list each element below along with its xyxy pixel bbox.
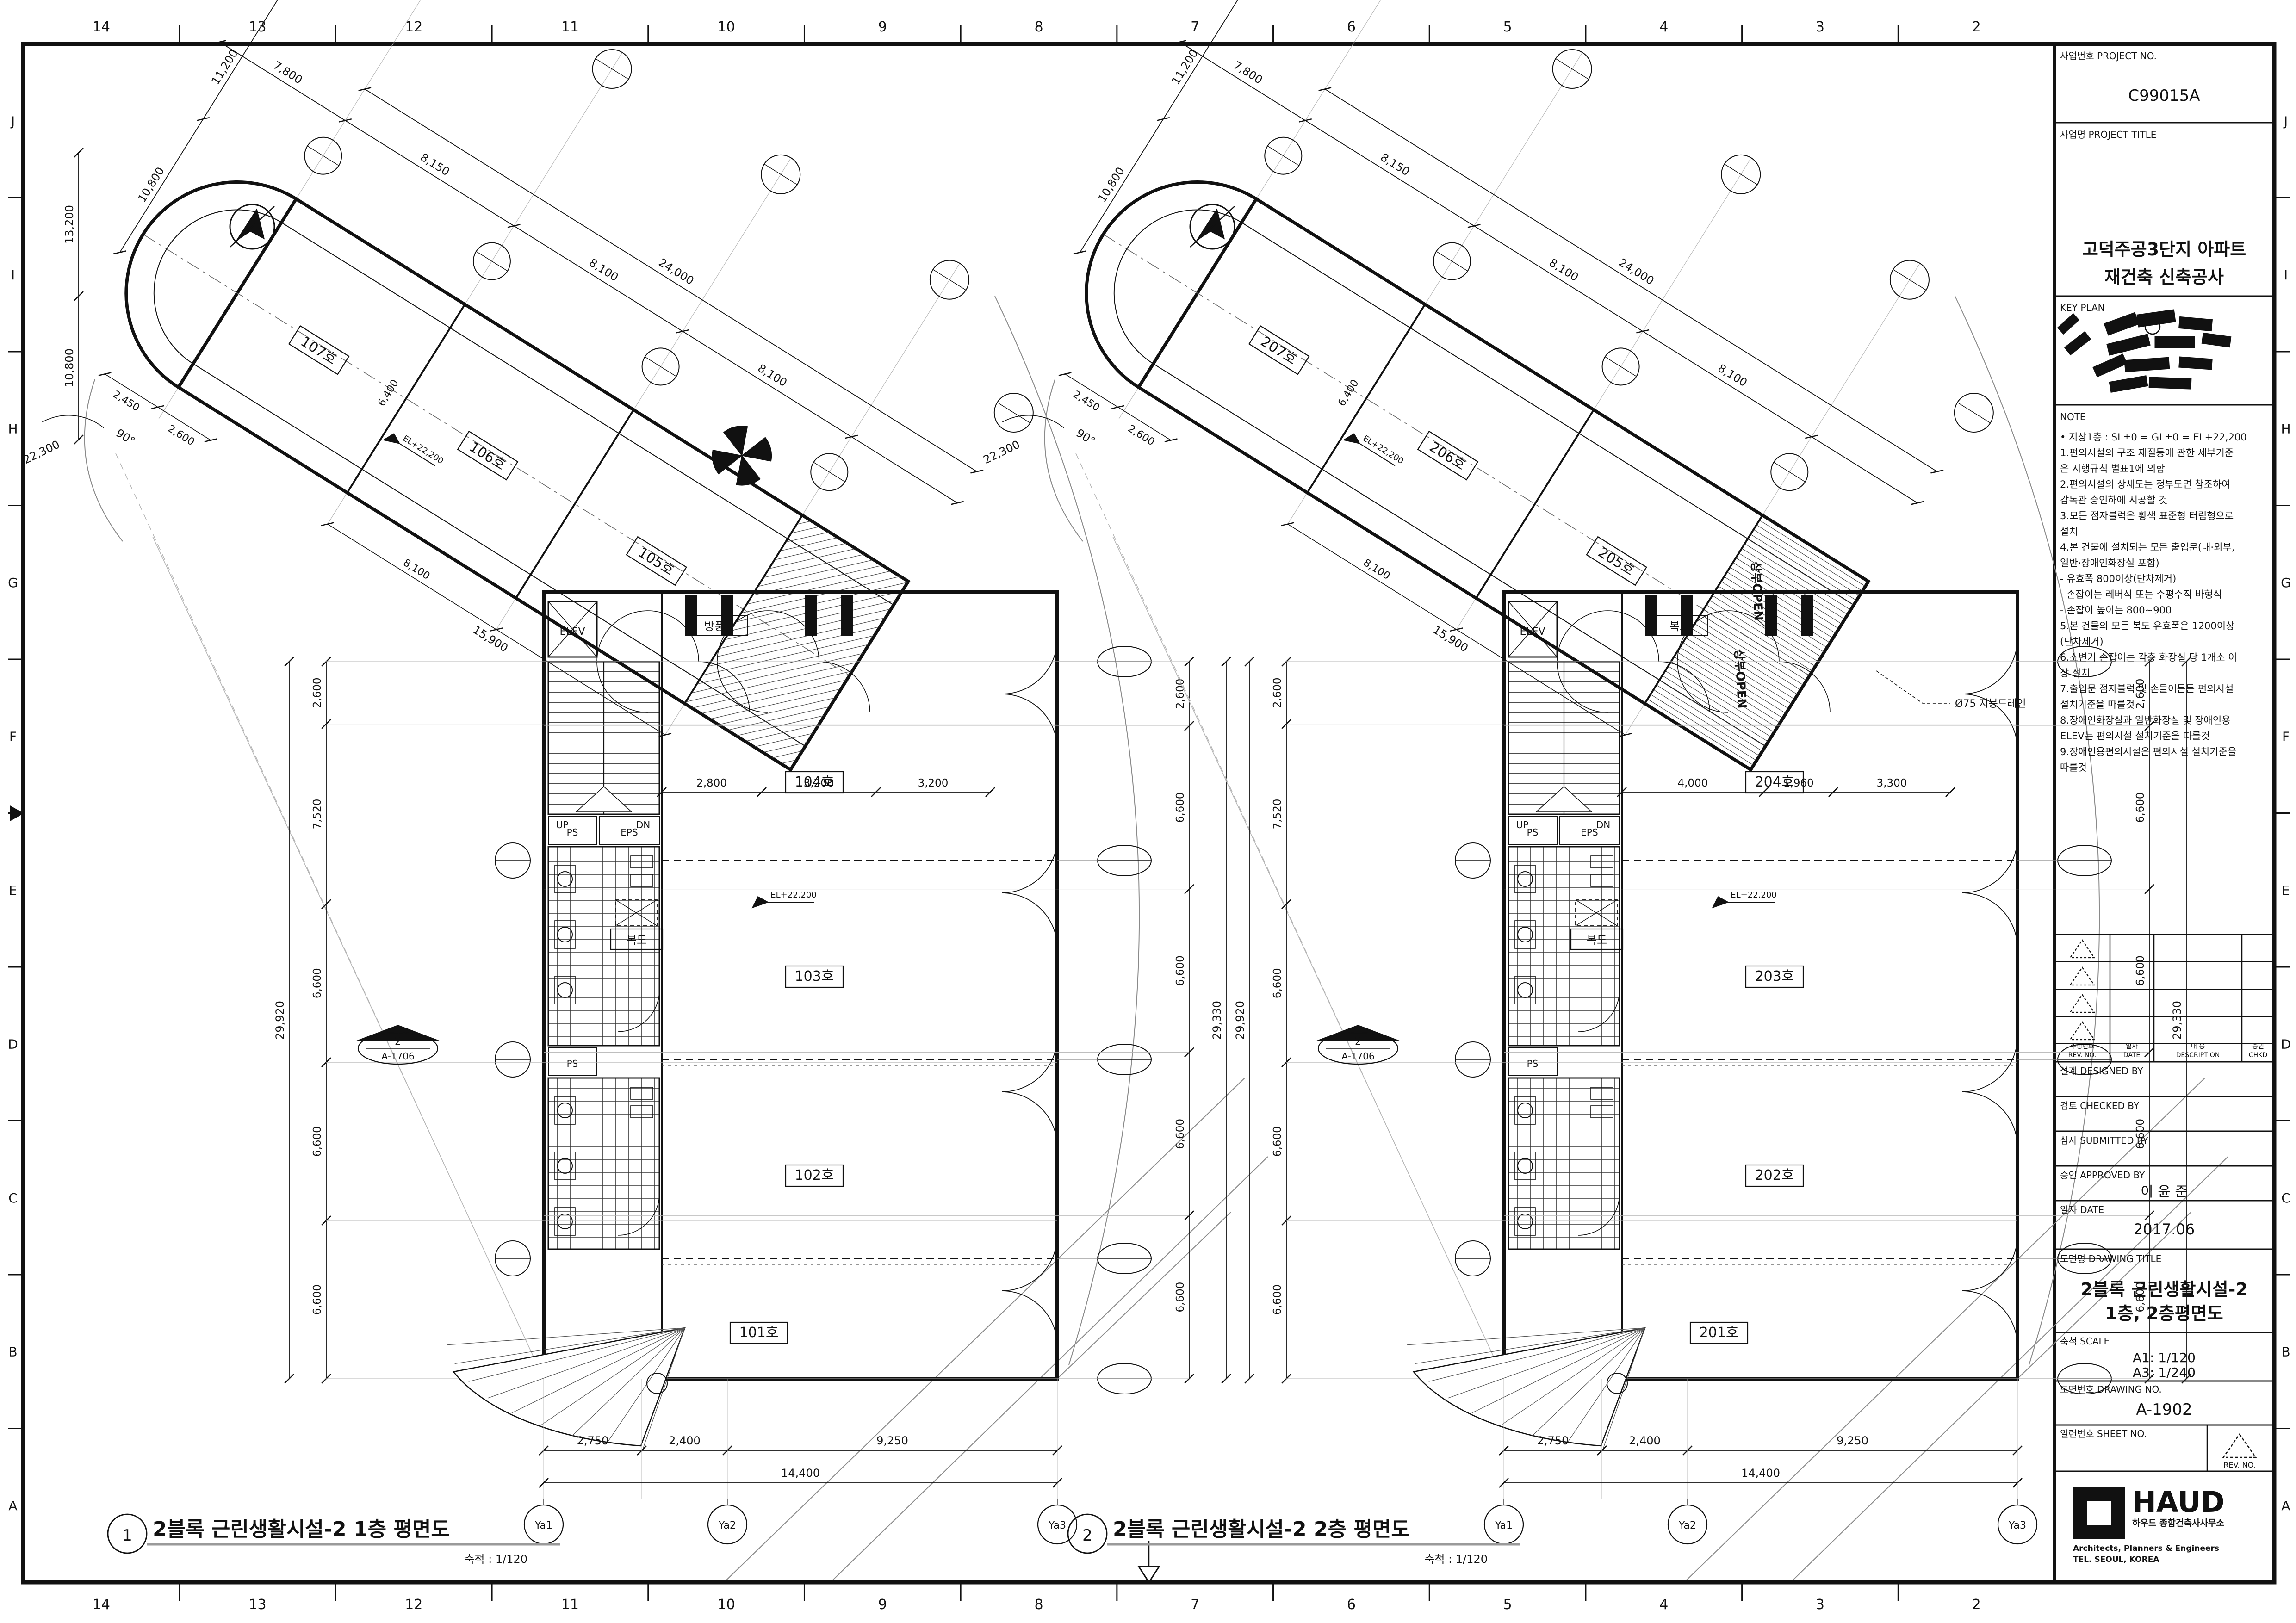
room-label: 102호 — [795, 1167, 834, 1183]
drain-label: Ø75 지붕드레인 — [1955, 698, 2026, 710]
elevator-label: ELEV — [1520, 626, 1545, 638]
border-letter-right: G — [2281, 575, 2291, 590]
dim-text: 7,520 — [311, 799, 323, 830]
dim-text: 6,600 — [311, 1284, 323, 1315]
dim-text: 29,330 — [2171, 1001, 2184, 1040]
scale-a1: A1: 1/120 — [2133, 1350, 2196, 1365]
checked-by-label: 검토 CHECKED BY — [2060, 1100, 2140, 1111]
dim-text: 9,250 — [876, 1434, 908, 1447]
room-label: 201호 — [1700, 1325, 1739, 1341]
border-letter-left: I — [11, 267, 15, 283]
section-ref: A-1706 — [381, 1051, 414, 1062]
border-letter-left: F — [9, 729, 17, 744]
drawing-no-label: 도면번호 DRAWING NO. — [2060, 1384, 2162, 1395]
logo-mark-inner — [2087, 1501, 2111, 1525]
border-number-bottom: 5 — [1503, 1597, 1512, 1613]
drawing-title-line1: 2블록 근린생활시설-2 — [2080, 1279, 2248, 1300]
border-number-top: 3 — [1816, 19, 1824, 35]
logo-name: HAUD — [2132, 1485, 2225, 1519]
border-letter-right: E — [2282, 883, 2290, 898]
rev-col4-eng: CHKD — [2249, 1052, 2267, 1059]
sheet-no-label: 일련번호 SHEET NO. — [2060, 1428, 2147, 1439]
dim-text: 2,750 — [1537, 1434, 1569, 1447]
border-number-top: 7 — [1191, 19, 1199, 35]
project-title-line2: 재건축 신축공사 — [2104, 267, 2224, 287]
rev-col2-kor: 일자 — [2126, 1043, 2138, 1050]
submitted-by-label: 심사 SUBMITTED BY — [2060, 1135, 2148, 1146]
note-label: NOTE — [2060, 411, 2086, 422]
border-number-top: 8 — [1034, 19, 1043, 35]
room-label: 101호 — [739, 1325, 779, 1341]
level-text: EL+22,200 — [1731, 890, 1776, 900]
corridor-label: 복도 — [627, 934, 647, 947]
rev-col3-kor: 내 용 — [2191, 1043, 2205, 1050]
key-plan-building — [2149, 377, 2191, 389]
note-line: 설치기준을 따를것 — [2060, 699, 2135, 710]
door-leaf — [721, 595, 733, 636]
door-leaf — [685, 595, 697, 636]
elevator-label: ELEV — [559, 626, 585, 638]
ps-label: PS — [1527, 827, 1539, 838]
corridor-label: 복도 — [1587, 934, 1607, 947]
dim-text: 3,200 — [804, 777, 834, 789]
border-number-bottom: 14 — [93, 1597, 110, 1613]
note-line: 일반·장애인화장실 포함) — [2060, 558, 2159, 569]
grid-bubble-label: Ya1 — [1495, 1520, 1513, 1531]
key-plan-building — [2155, 337, 2195, 348]
border-number-bottom: 13 — [248, 1597, 266, 1613]
note-line: - 손잡이 높이는 800~900 — [2060, 605, 2172, 616]
dim-text: 6,600 — [1174, 1282, 1186, 1313]
rev-no-label: REV. NO. — [2223, 1461, 2255, 1469]
rev-col1-kor: 수정번호 — [2070, 1043, 2094, 1050]
door-leaf — [805, 595, 817, 636]
grid-bubble-label: Ya3 — [1048, 1520, 1066, 1531]
note-line: 상 설치 — [2060, 668, 2090, 679]
plan-title-text: 2블록 근린생활시설-2 1층 평면도 — [153, 1518, 450, 1541]
note-line: 5.본 건물의 모든 복도 유효폭은 1200이상 — [2060, 620, 2234, 632]
room-label: 203호 — [1755, 968, 1794, 985]
note-line: (단차제거) — [2060, 636, 2104, 647]
room-label: 202호 — [1755, 1167, 1794, 1183]
approved-by-value: 이 윤 준 — [2141, 1184, 2188, 1200]
dim-text: 6,600 — [311, 968, 323, 998]
note-line: 따를것 — [2060, 762, 2087, 773]
border-letter-left: E — [9, 883, 17, 898]
border-number-bottom: 9 — [878, 1597, 887, 1613]
dim-text: 2,400 — [669, 1434, 701, 1447]
date-label: 일자 DATE — [2060, 1204, 2104, 1215]
project-no-label: 사업번호 PROJECT NO. — [2060, 50, 2157, 62]
dim-text: 4,000 — [1677, 777, 1708, 789]
dim-text: 2,400 — [1629, 1434, 1661, 1447]
border-number-bottom: 6 — [1347, 1597, 1356, 1613]
border-number-bottom: 4 — [1659, 1597, 1668, 1613]
note-line: ELEV는 편의시설 설치기준을 따를것 — [2060, 731, 2210, 742]
note-line: 8.장애인화장실과 일반화장실 및 장애인용 — [2060, 715, 2231, 726]
section-no: 2 — [395, 1036, 401, 1047]
drawing-sheet: 141413131212111110109988776655443322JJII… — [0, 0, 2296, 1623]
border-letter-right: I — [2284, 267, 2288, 283]
rev-col4-kor: 승인 — [2252, 1043, 2264, 1050]
grid-bubble-label: Ya3 — [2008, 1520, 2026, 1531]
dim-text: 6,600 — [311, 1126, 323, 1157]
dim-text: 2,600 — [1174, 679, 1186, 709]
dim-text: 29,330 — [1210, 1001, 1223, 1040]
dim-text: 1,960 — [1783, 777, 1814, 789]
designed-by-label: 설계 DESIGNED BY — [2060, 1065, 2143, 1077]
door-leaf — [1801, 595, 1813, 636]
dim-text: 6,600 — [1272, 1284, 1284, 1315]
project-title-label: 사업명 PROJECT TITLE — [2060, 129, 2156, 140]
note-line: - 손잡이는 레버식 또는 수평수직 바형식 — [2060, 589, 2222, 600]
border-letter-right: F — [2282, 729, 2290, 744]
border-number-top: 14 — [93, 19, 110, 35]
dim-text: 6,600 — [1174, 955, 1186, 986]
border-number-bottom: 10 — [718, 1597, 735, 1613]
ps-label: PS — [1527, 1058, 1539, 1069]
note-line: - 유효폭 800이상(단차제거) — [2060, 573, 2176, 584]
border-number-top: 5 — [1503, 19, 1512, 35]
stair-dn-label: DN — [1596, 819, 1610, 830]
border-number-top: 2 — [1972, 19, 1981, 35]
plan-scale-text: 축척 : 1/120 — [1424, 1553, 1488, 1566]
border-number-top: 10 — [718, 19, 735, 35]
key-plan-building — [2179, 357, 2212, 370]
project-title-line1: 고덕주공3단지 아파트 — [2082, 239, 2246, 260]
note-line: 감독관 승인하에 시공할 것 — [2060, 495, 2168, 506]
border-letter-right: A — [2281, 1498, 2290, 1513]
note-line: 7.출입문 점자블럭 및 손들어든든 편의시설 — [2060, 683, 2234, 694]
border-letter-left: G — [8, 575, 18, 590]
plan-number: 1 — [122, 1526, 132, 1545]
dim-text: 2,600 — [311, 677, 323, 708]
border-number-top: 11 — [561, 19, 579, 35]
drawing-title-label: 도면명 DRAWING TITLE — [2060, 1253, 2161, 1264]
door-leaf — [1765, 595, 1777, 636]
dim-text: 9,250 — [1837, 1434, 1868, 1447]
border-number-top: 12 — [405, 19, 422, 35]
grid-bubble-label: Ya2 — [1678, 1520, 1696, 1531]
section-no: 2 — [1355, 1036, 1361, 1047]
project-no-value: C99015A — [2128, 87, 2200, 105]
dim-text: 6,600 — [1272, 1126, 1284, 1157]
section-ref: A-1706 — [1341, 1051, 1374, 1062]
dim-text: 3,200 — [918, 777, 949, 789]
dim-text: 13,200 — [63, 205, 76, 244]
note-line: • 지상1층 : SL±0 = GL±0 = EL+22,200 — [2060, 432, 2247, 443]
border-number-bottom: 7 — [1191, 1597, 1199, 1613]
border-number-bottom: 11 — [561, 1597, 579, 1613]
border-letter-right: H — [2281, 421, 2290, 436]
plan-scale-text: 축척 : 1/120 — [464, 1553, 527, 1566]
dim-text: 3,300 — [1877, 777, 1907, 789]
eps-label: EPS — [621, 827, 638, 838]
dim-text: 6,600 — [2135, 955, 2147, 986]
drawing-no-value: A-1902 — [2136, 1400, 2192, 1419]
ps-label: PS — [567, 827, 578, 838]
border-number-bottom: 2 — [1972, 1597, 1981, 1613]
border-number-bottom: 8 — [1034, 1597, 1043, 1613]
logo-sub2: Architects, Planners & Engineers — [2073, 1544, 2219, 1553]
drawing-title-line2: 1층, 2층평면도 — [2105, 1303, 2223, 1324]
scale-label: 축척 SCALE — [2060, 1336, 2110, 1347]
eps-label: EPS — [1581, 827, 1598, 838]
dim-text: 2,600 — [1272, 677, 1284, 708]
plan-number: 2 — [1082, 1526, 1092, 1545]
border-letter-right: B — [2281, 1344, 2290, 1359]
rev-col2-eng: DATE — [2123, 1052, 2140, 1059]
restroom-area — [548, 1078, 659, 1249]
dim-text: 2,800 — [696, 777, 727, 789]
border-letter-left: J — [10, 113, 15, 129]
door-leaf — [1645, 595, 1657, 636]
border-number-top: 9 — [878, 19, 887, 35]
note-line: 1.편의시설의 구조 재질등에 관한 세부기준 — [2060, 447, 2234, 458]
note-line: 3.모든 점자블럭은 황색 표준형 터림형으로 — [2060, 510, 2234, 521]
dim-text: 6,600 — [1174, 1119, 1186, 1149]
logo-sub1: 하우드 종합건축사사무소 — [2132, 1518, 2224, 1528]
border-letter-left: B — [8, 1344, 17, 1359]
note-line: 9.장애인용편의시설은 편의시설 설치기준을 — [2060, 746, 2236, 757]
room-label: 103호 — [795, 968, 834, 985]
restroom-area — [1508, 1078, 1620, 1249]
door-leaf — [1681, 595, 1693, 636]
key-plan-building — [2149, 377, 2191, 389]
scale-a3: A3: 1/240 — [2133, 1365, 2196, 1380]
dim-text: 14,400 — [781, 1467, 820, 1480]
date-value: 2017.06 — [2134, 1220, 2195, 1238]
door-leaf — [841, 595, 853, 636]
border-number-bottom: 12 — [405, 1597, 422, 1613]
dim-text: 6,600 — [1174, 792, 1186, 823]
note-line: 4.본 건물에 설치되는 모든 출입문(내·외부, — [2060, 542, 2234, 553]
stair-dn-label: DN — [636, 819, 650, 830]
key-plan-label: KEY PLAN — [2060, 302, 2105, 313]
plan-title-text: 2블록 근린생활시설-2 2층 평면도 — [1113, 1518, 1410, 1541]
company-logo: HAUD 하우드 종합건축사사무소 Architects, Planners &… — [2073, 1485, 2225, 1564]
grid-bubble-label: Ya1 — [534, 1520, 552, 1531]
dim-text: 10,800 — [63, 348, 76, 387]
border-number-top: 4 — [1659, 19, 1668, 35]
logo-sub3: TEL. SEOUL, KOREA — [2073, 1555, 2159, 1564]
rev-col3-eng: DESCRIPTION — [2176, 1052, 2220, 1059]
border-letter-left: A — [8, 1498, 17, 1513]
dim-text: 6,600 — [1272, 968, 1284, 998]
note-line: 6.소변기 손잡이는 각층 화장실 당 1개소 이 — [2060, 652, 2237, 663]
dim-text: 14,400 — [1741, 1467, 1780, 1480]
border-letter-left: D — [8, 1036, 18, 1052]
note-line: 2.편의시설의 상세도는 정부도면 참조하여 — [2060, 479, 2231, 490]
dim-text: 7,520 — [1272, 799, 1284, 830]
ps-label: PS — [567, 1058, 578, 1069]
border-letter-right: C — [2281, 1190, 2290, 1206]
key-plan-building — [2179, 357, 2212, 370]
border-letter-left: H — [8, 421, 18, 436]
approved-by-label: 승인 APPROVED BY — [2060, 1170, 2145, 1181]
rev-col1-eng: REV. NO. — [2068, 1052, 2097, 1059]
key-plan-building — [2155, 337, 2195, 348]
dim-text: 29,920 — [1234, 1001, 1247, 1040]
key-plan-building — [2179, 317, 2212, 331]
border-letter-right: J — [2283, 113, 2288, 129]
border-number-top: 6 — [1347, 19, 1356, 35]
key-plan-building — [2179, 317, 2212, 331]
grid-bubble-label: Ya2 — [718, 1520, 736, 1531]
border-letter-right: D — [2281, 1036, 2291, 1052]
border-letter-left: C — [8, 1190, 18, 1206]
level-text: EL+22,200 — [770, 890, 816, 900]
dim-text: 2,750 — [577, 1434, 609, 1447]
note-line: 은 시행규칙 별표1에 의함 — [2060, 463, 2165, 474]
dim-text: 29,920 — [273, 1001, 286, 1040]
border-number-bottom: 3 — [1816, 1597, 1824, 1613]
dim-text: 6,600 — [2135, 792, 2147, 823]
note-line: 설치 — [2060, 526, 2078, 537]
